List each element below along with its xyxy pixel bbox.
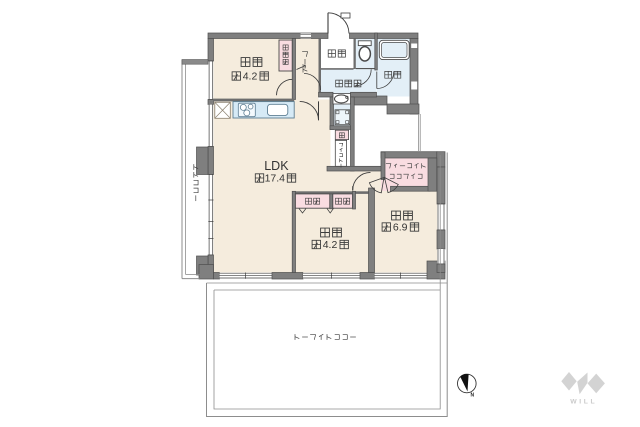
svg-text:LDK: LDK	[264, 159, 289, 173]
svg-text:N: N	[470, 393, 474, 399]
svg-text:WILL: WILL	[570, 398, 597, 405]
svg-text:4.2: 4.2	[323, 239, 338, 251]
svg-text:6.9: 6.9	[393, 222, 408, 234]
svg-text:4.2: 4.2	[243, 71, 258, 83]
svg-text:17.4: 17.4	[265, 173, 286, 185]
